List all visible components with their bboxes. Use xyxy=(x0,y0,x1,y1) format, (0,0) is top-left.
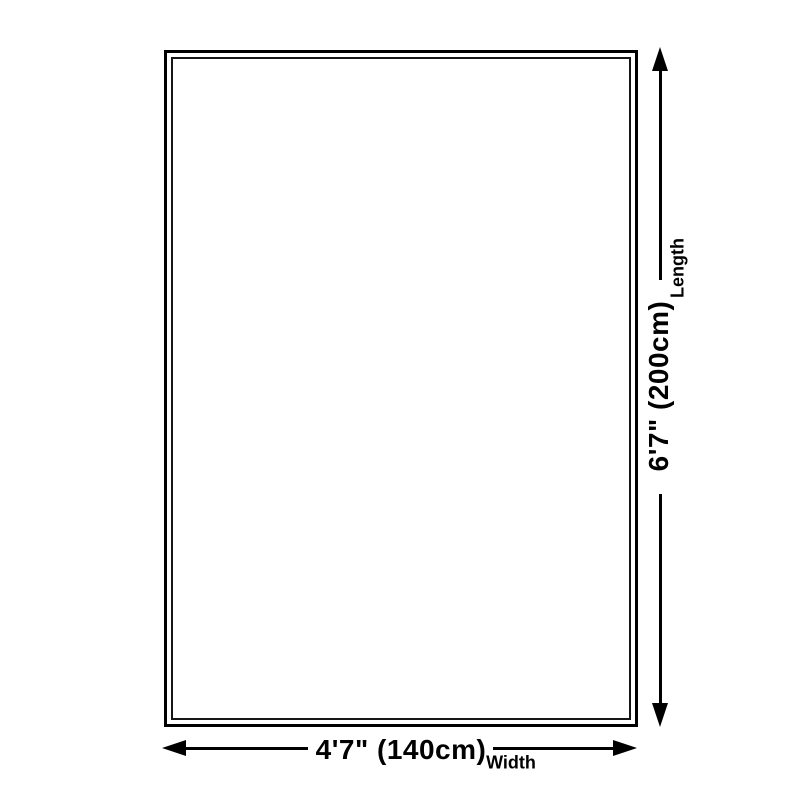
arrow-down-icon xyxy=(652,703,668,727)
product-outline-inner-border xyxy=(171,57,631,720)
length-dimension-value: 6'7" (200cm) xyxy=(643,301,675,472)
size-diagram: 6'7" (200cm) Length 4'7" (140cm) Width xyxy=(0,0,800,800)
width-axis-label: Width xyxy=(486,753,536,774)
width-dimension-value: 4'7" (140cm) xyxy=(316,734,487,766)
length-line-bottom-segment xyxy=(659,494,662,712)
length-line-top-segment xyxy=(659,62,662,280)
length-axis-label: Length xyxy=(668,238,689,298)
width-line-right-segment xyxy=(493,747,623,750)
width-line-left-segment xyxy=(176,747,308,750)
arrow-right-icon xyxy=(613,740,637,756)
product-outline-outer-border xyxy=(164,50,638,727)
